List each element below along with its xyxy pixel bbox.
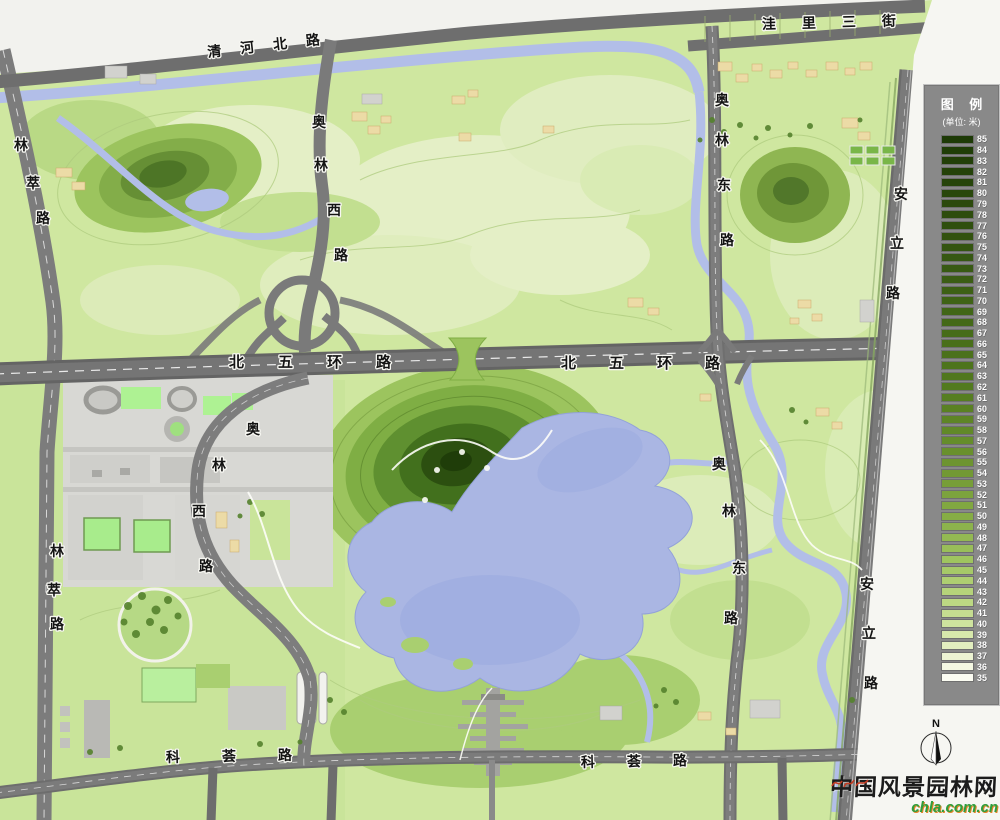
legend-row: 80 [941,188,999,199]
legend-row: 58 [941,425,999,436]
legend-row: 43 [941,586,999,597]
legend-swatch [941,490,974,499]
legend-swatch [941,253,974,262]
legend-value: 65 [977,350,987,360]
legend-value: 52 [977,490,987,500]
legend-swatch [941,652,974,661]
legend-swatch [941,630,974,639]
legend-row: 47 [941,543,999,554]
legend-row: 46 [941,554,999,565]
road-label-fifth-ring-west: 北五环路 [229,353,425,371]
legend-value: 45 [977,565,987,575]
legend-row: 45 [941,565,999,576]
legend-row: 82 [941,166,999,177]
legend-row: 64 [941,360,999,371]
legend-value: 56 [977,447,987,457]
legend-swatch [941,447,974,456]
legend-scale: 8584838281807978777675747372717069686766… [924,134,999,683]
legend-swatch [941,619,974,628]
legend-swatch [941,307,974,316]
legend-value: 36 [977,662,987,672]
legend-value: 71 [977,285,987,295]
legend-value: 55 [977,457,987,467]
legend-row: 85 [941,134,999,145]
legend-row: 37 [941,651,999,662]
road-label-char: 西 [192,503,206,519]
road-label-char: 路 [724,610,739,626]
legend-row: 75 [941,242,999,253]
road-label-char: 路 [886,285,901,301]
road-label-char: 立 [862,625,876,641]
legend-value: 81 [977,177,987,187]
lake-island [380,597,396,607]
legend-row: 40 [941,618,999,629]
legend-row: 67 [941,328,999,339]
legend-row: 39 [941,629,999,640]
lake-island [453,658,473,670]
legend-row: 66 [941,339,999,350]
legend-value: 48 [977,533,987,543]
legend-row: 53 [941,479,999,490]
legend-swatch [941,501,974,510]
legend-title: 图 例 [924,94,999,113]
legend-row: 61 [941,392,999,403]
legend-swatch [941,178,974,187]
legend-value: 43 [977,587,987,597]
legend-row: 42 [941,597,999,608]
road-label-char: 西 [327,202,341,218]
legend-value: 53 [977,479,987,489]
legend-row: 35 [941,672,999,683]
legend-value: 82 [977,167,987,177]
legend-row: 83 [941,156,999,167]
park-master-plan-map: 清河北路 洼里三街 奥 林 西 路 奥 林 东 路 安 立 路 林 萃 路 林 … [0,0,1000,820]
legend-row: 76 [941,231,999,242]
legend-value: 37 [977,651,987,661]
road-label-fifth-ring-east: 北五环路 [561,354,753,372]
legend-value: 61 [977,393,987,403]
legend-swatch [941,522,974,531]
legend-row: 52 [941,489,999,500]
legend-row: 78 [941,209,999,220]
legend-swatch [941,372,974,381]
legend-swatch [941,264,974,273]
legend-value: 51 [977,500,987,510]
legend-swatch [941,512,974,521]
legend-row: 70 [941,295,999,306]
legend-value: 84 [977,145,987,155]
legend-panel: 图 例 (单位: 米) 8584838281807978777675747372… [923,84,1000,706]
legend-swatch [941,469,974,478]
road-label-char: 东 [732,560,746,576]
legend-row: 55 [941,457,999,468]
legend-value: 72 [977,274,987,284]
road-label-char: 林 [14,137,28,153]
legend-row: 41 [941,608,999,619]
legend-value: 60 [977,404,987,414]
legend-swatch [941,275,974,284]
road-label-char: 萃 [26,175,40,191]
legend-value: 59 [977,414,987,424]
legend-row: 57 [941,435,999,446]
legend-row: 38 [941,640,999,651]
lake-island [401,637,429,653]
road-label-char: 路 [50,616,65,632]
legend-value: 66 [977,339,987,349]
road-label-char: 安 [860,576,874,592]
legend-swatch [941,286,974,295]
legend-row: 51 [941,500,999,511]
road-label-char: 奥 [312,114,327,130]
legend-swatch [941,566,974,575]
legend-row: 49 [941,522,999,533]
legend-row: 50 [941,511,999,522]
legend-value: 69 [977,307,987,317]
road-label-char: 安 [894,186,908,202]
legend-swatch [941,404,974,413]
legend-swatch [941,544,974,553]
legend-row: 54 [941,468,999,479]
legend-value: 78 [977,210,987,220]
watermark-domain-link[interactable]: chla.com.cn [911,799,998,816]
legend-value: 63 [977,371,987,381]
legend-swatch [941,189,974,198]
legend-swatch [941,329,974,338]
legend-value: 58 [977,425,987,435]
legend-swatch [941,382,974,391]
legend-swatch [941,232,974,241]
road-label-char: 路 [864,675,879,691]
legend-row: 44 [941,575,999,586]
legend-swatch [941,587,974,596]
legend-swatch [941,436,974,445]
legend-value: 49 [977,522,987,532]
legend-row: 60 [941,403,999,414]
legend-value: 64 [977,360,987,370]
legend-swatch [941,609,974,618]
legend-swatch [941,350,974,359]
legend-swatch [941,339,974,348]
legend-value: 76 [977,231,987,241]
legend-swatch [941,221,974,230]
legend-value: 54 [977,468,987,478]
road-label-kehui-east: 科荟路 [581,752,719,770]
legend-value: 46 [977,554,987,564]
road-stub [782,758,783,820]
road-label-char: 奥 [246,421,261,437]
legend-value: 57 [977,436,987,446]
road-label-char: 路 [334,247,349,263]
legend-value: 77 [977,221,987,231]
road-label-char: 立 [890,235,904,251]
legend-value: 41 [977,608,987,618]
legend-value: 39 [977,630,987,640]
road-label-char: 奥 [715,92,730,108]
legend-row: 68 [941,317,999,328]
legend-value: 42 [977,597,987,607]
road-stub [211,768,213,820]
legend-value: 44 [977,576,987,586]
legend-row: 56 [941,446,999,457]
road-label-char: 路 [36,210,51,226]
legend-swatch [941,361,974,370]
legend-value: 70 [977,296,987,306]
road-label-char: 林 [722,503,736,519]
legend-value: 74 [977,253,987,263]
legend-row: 74 [941,252,999,263]
legend-swatch [941,243,974,252]
road-stub [331,765,333,820]
road-label-char: 林 [715,132,729,148]
legend-value: 83 [977,156,987,166]
northeast-hill [740,147,850,243]
legend-swatch [941,458,974,467]
legend-row: 59 [941,414,999,425]
legend-swatch [941,156,974,165]
legend-row: 77 [941,220,999,231]
legend-swatch [941,479,974,488]
legend-swatch [941,199,974,208]
legend-swatch [941,576,974,585]
legend-row: 69 [941,306,999,317]
legend-value: 85 [977,134,987,144]
legend-swatch [941,533,974,542]
watermark: 中国风景园林网 chla.com.cn [830,776,998,816]
road-label-char: 萃 [47,582,61,598]
lake-deep-area [400,575,580,665]
legend-value: 50 [977,511,987,521]
legend-row: 73 [941,263,999,274]
legend-unit: (单位: 米) [924,115,999,128]
legend-swatch [941,296,974,305]
legend-swatch [941,662,974,671]
road-label-kehui-west: 科荟路 [166,746,334,765]
legend-value: 67 [977,328,987,338]
map-stage: 清河北路 洼里三街 奥 林 西 路 奥 林 东 路 安 立 路 林 萃 路 林 … [0,0,1000,820]
legend-swatch [941,555,974,564]
legend-value: 38 [977,640,987,650]
road-label-char: 路 [199,558,214,574]
legend-row: 71 [941,285,999,296]
legend-value: 68 [977,317,987,327]
legend-row: 72 [941,274,999,285]
legend-swatch [941,598,974,607]
legend-swatch [941,167,974,176]
legend-row: 48 [941,532,999,543]
watermark-seal-icon [830,776,870,790]
legend-swatch [941,641,974,650]
road-label-char: 东 [717,177,731,193]
legend-swatch [941,210,974,219]
legend-swatch [941,426,974,435]
legend-value: 79 [977,199,987,209]
road-label-char: 林 [50,543,64,559]
legend-value: 73 [977,264,987,274]
legend-value: 62 [977,382,987,392]
legend-swatch [941,135,974,144]
legend-row: 63 [941,371,999,382]
legend-row: 36 [941,662,999,673]
road-label-char: 林 [212,457,226,473]
road-label-char: 林 [314,157,328,173]
legend-row: 81 [941,177,999,188]
legend-value: 35 [977,673,987,683]
legend-swatch [941,393,974,402]
road-label-char: 路 [720,232,735,248]
legend-row: 84 [941,145,999,156]
legend-swatch [941,673,974,682]
legend-swatch [941,146,974,155]
road-label-char: 奥 [712,456,727,472]
legend-row: 65 [941,349,999,360]
legend-swatch [941,415,974,424]
legend-value: 75 [977,242,987,252]
legend-value: 40 [977,619,987,629]
legend-value: 80 [977,188,987,198]
compass-north-label: N [932,718,940,730]
legend-swatch [941,318,974,327]
legend-value: 47 [977,543,987,553]
legend-row: 62 [941,382,999,393]
legend-row: 79 [941,199,999,210]
